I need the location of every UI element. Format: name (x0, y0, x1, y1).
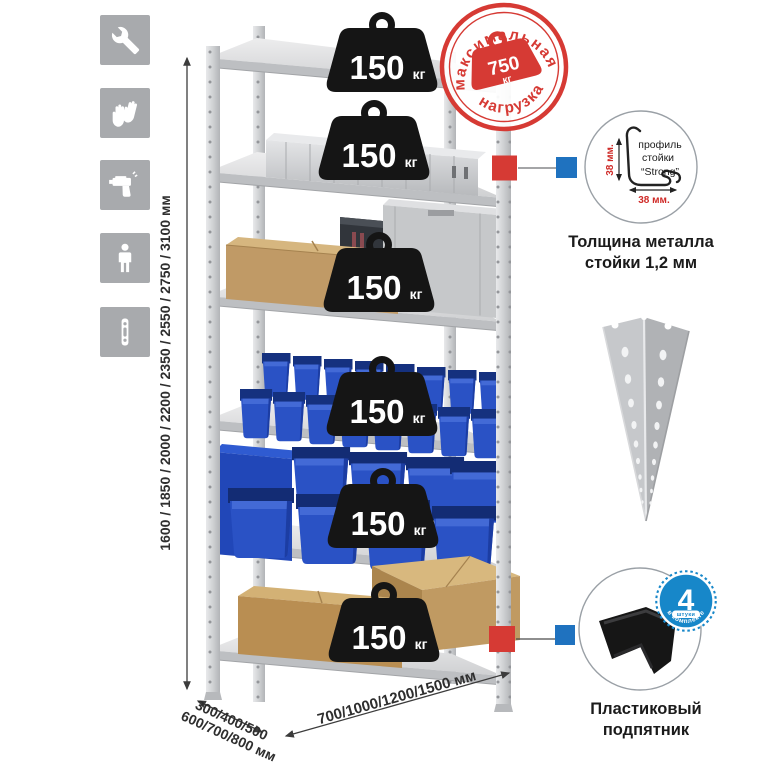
height-dimension: 1600 / 1850 / 2000 / 2200 / 2350 / 2550 … (157, 58, 187, 689)
red-marker-top (492, 156, 517, 181)
blue-marker-bottom (555, 625, 575, 645)
profile-label-3: “Strong” (641, 166, 679, 178)
red-marker-bottom (489, 626, 515, 652)
svg-text:кг: кг (413, 66, 426, 82)
profile-label-1: профиль (638, 139, 682, 151)
foot-caption-line1: Пластиковый (553, 699, 739, 720)
blue-marker-top (556, 157, 577, 178)
svg-text:150: 150 (346, 269, 401, 306)
profile-dim-vertical: 38 мм. (605, 144, 616, 176)
load-badge-1: 150 кг (327, 16, 438, 93)
svg-text:кг: кг (414, 522, 427, 538)
profile-callout-connector (492, 156, 577, 181)
scene: 150 кг 150 кг 150 кг 150 кг 150 кг 150 к… (0, 0, 765, 765)
svg-text:кг: кг (405, 154, 418, 170)
foot-callout-connector (489, 625, 575, 652)
foot-caption: Пластиковый подпятник (553, 699, 739, 742)
svg-text:кг: кг (415, 636, 428, 652)
width-dimension-label: 700/1000/1200/1500 мм (316, 667, 478, 728)
load-badge-2: 150 кг (319, 104, 430, 181)
foot-detail-circle: 4 штуки в комплекте (579, 568, 716, 690)
profile-detail-circle: профиль стойки “Strong” 38 мм. 38 мм. (585, 111, 697, 223)
svg-text:150: 150 (349, 393, 404, 430)
width-dimension: 700/1000/1200/1500 мм (286, 667, 509, 736)
svg-text:кг: кг (413, 410, 426, 426)
product-infographic: 150 кг 150 кг 150 кг 150 кг 150 кг 150 к… (0, 0, 765, 765)
profile-caption-line1: Толщина металла (548, 232, 734, 253)
corner-post-image (603, 314, 689, 521)
svg-text:150: 150 (341, 137, 396, 174)
height-dimension-label: 1600 / 1850 / 2000 / 2200 / 2350 / 2550 … (157, 195, 173, 550)
svg-text:кг: кг (410, 286, 423, 302)
svg-text:150: 150 (350, 505, 405, 542)
depth-dimension: 300/400/500 600/700/800 мм (179, 693, 286, 765)
profile-dim-horizontal: 38 мм. (638, 195, 670, 206)
profile-caption-line2: стойки 1,2 мм (548, 253, 734, 274)
profile-label-2: стойки (642, 152, 674, 164)
foot-caption-line2: подпятник (553, 720, 739, 741)
profile-caption: Толщина металла стойки 1,2 мм (548, 232, 734, 275)
svg-text:150: 150 (351, 619, 406, 656)
svg-text:150: 150 (349, 49, 404, 86)
